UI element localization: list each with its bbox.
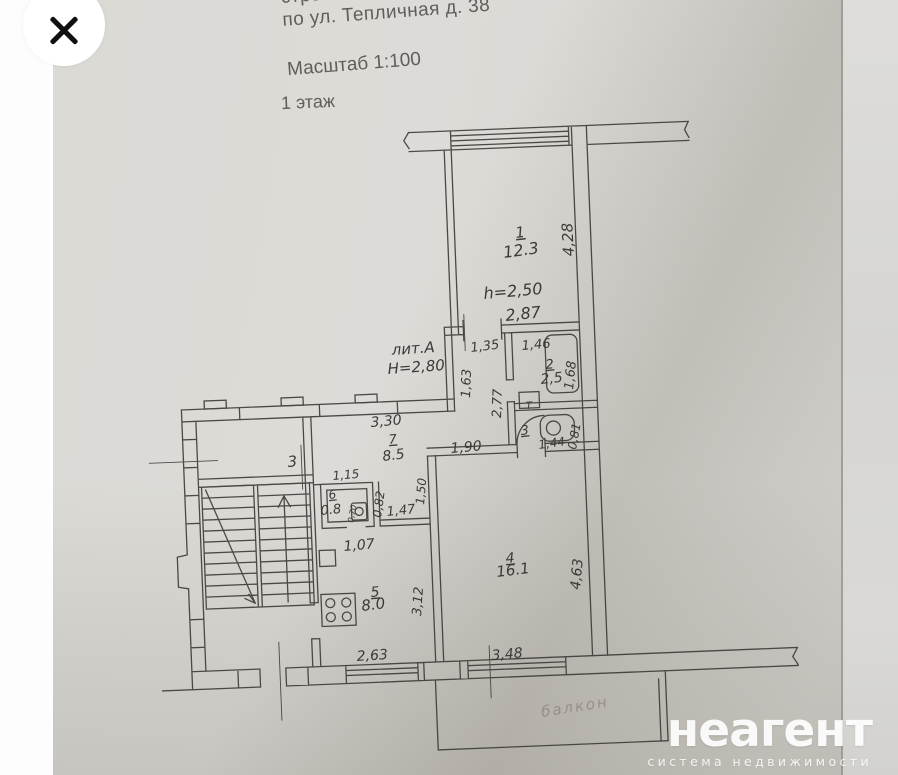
stair-direction-arrows (206, 487, 295, 605)
plan-label: h=2,50 (483, 279, 544, 303)
plan-label: 0,81 (565, 422, 583, 451)
dimension-ticks (144, 314, 492, 725)
plan-label: 4,63 (568, 558, 587, 590)
plan-label: 3 (520, 423, 530, 439)
plan-label: 4,28 (558, 222, 578, 256)
close-icon (47, 13, 81, 47)
plan-label: 1,68 (562, 360, 580, 390)
plan-label: 2,87 (504, 302, 542, 325)
plan-label: 1,90 (450, 438, 483, 457)
plan-label: 1,07 (343, 536, 376, 555)
plan-label: 3,30 (370, 412, 403, 431)
hall-cabinet-icon (319, 550, 336, 567)
plan-label: 8.5 (382, 446, 406, 465)
pilaster (281, 397, 303, 406)
walls-left-wing (151, 386, 798, 691)
walls-top-block (403, 121, 709, 662)
plan-label: 2,63 (356, 647, 388, 665)
plan-label: 12.3 (502, 238, 540, 262)
plan-label: 3,12 (410, 586, 427, 616)
plan-label: 16.1 (495, 559, 530, 581)
pilaster (204, 400, 226, 409)
plan-label: 2,5 (540, 370, 564, 388)
plan-label: 2,77 (490, 388, 506, 418)
staircase (202, 483, 315, 609)
handwritten-note: балкон (540, 693, 610, 721)
plan-label: 1,50 (413, 477, 429, 505)
plan-label: 3 (287, 452, 298, 471)
plan-label: 1,46 (521, 337, 551, 354)
floorplan-drawing: 112.34,28h=2,502,87лит.АН=2,801,351,4622… (0, 0, 898, 775)
plan-label: Н=2,80 (387, 356, 445, 378)
plan-labels: 112.34,28h=2,502,87лит.АН=2,801,351,4622… (287, 222, 610, 721)
plan-label: лит.А (390, 338, 435, 359)
plan-label: 0.8 (320, 502, 342, 519)
floorplan-viewer-screen: строения лит. по ул. Тепличная д. 38 Мас… (0, 0, 898, 775)
pilaster (355, 394, 377, 403)
plan-label: 1,44 (537, 434, 565, 452)
plan-label: 1,15 (332, 467, 360, 483)
plan-label: 3,48 (491, 645, 524, 664)
plan-label: 7 (388, 432, 398, 448)
stove-icon (321, 593, 356, 626)
plan-label: 8.0 (360, 594, 386, 615)
plan-label: 1,35 (470, 338, 501, 356)
plan-label: 1,63 (459, 369, 475, 398)
